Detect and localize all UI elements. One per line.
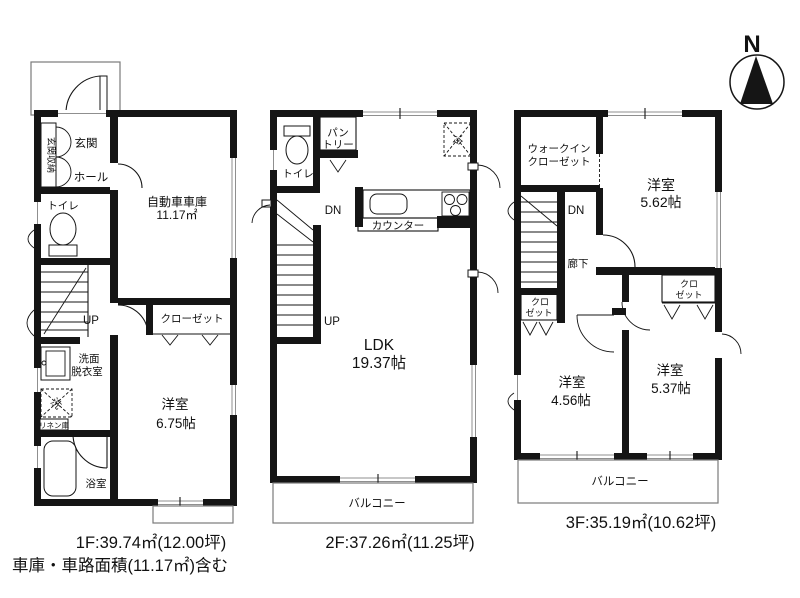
label-washroom-2: 脱衣室 [71, 365, 103, 378]
label-ldk: LDK [364, 337, 395, 354]
label-closet-b-2: ゼット [675, 289, 702, 300]
label-pantry-1: パン [327, 127, 349, 139]
label-closet-a-2: ゼット [525, 307, 552, 318]
floorplan-image: 玄関収納 玄関 ホール トイレ 自動車車庫 11.17㎡ UP クローゼット 洗… [0, 0, 800, 598]
label-toilet-2f: トイレ [282, 168, 314, 180]
label-bedroom2-size: 4.56帖 [551, 393, 591, 408]
label-wic-2: クローゼット [528, 156, 591, 168]
label-dn-2f: DN [325, 205, 342, 217]
label-garage-area: 11.17㎡ [156, 208, 197, 222]
terrace [153, 506, 233, 523]
label-ldk-size: 19.37帖 [352, 354, 406, 372]
floor1-note: 車庫・車路面積(11.17㎡)含む [12, 556, 228, 575]
label-up-2f: UP [324, 316, 340, 328]
label-entrance-storage: 玄関収納 [46, 137, 57, 173]
label-bathroom: 浴室 [86, 477, 107, 490]
label-closet-a-1: クロ [531, 297, 549, 307]
floor2-plan: トイレ パン トリー 冷 DN UP カウンター LDK 19.37帖 バルコニ… [252, 108, 500, 552]
label-garage: 自動車車庫 [147, 195, 207, 209]
label-balcony-2f: バルコニー [348, 497, 405, 510]
label-up: UP [83, 315, 99, 327]
floorplan-page: 玄関収納 玄関 ホール トイレ 自動車車庫 11.17㎡ UP クローゼット 洗… [0, 0, 800, 598]
label-counter: カウンター [372, 220, 425, 232]
label-bedroom3-size: 5.37帖 [651, 381, 691, 396]
toilet-icon-2f [284, 126, 310, 164]
label-bedroom3: 洋室 [657, 362, 684, 378]
label-linen: リネン庫 [39, 420, 69, 430]
label-bedroom: 洋室 [162, 396, 189, 412]
entrance-door-leaf-icon [100, 76, 107, 114]
label-closet: クローゼット [161, 313, 224, 325]
label-closet-b-1: クロ [680, 279, 698, 289]
vanity-icon [41, 347, 70, 380]
sink-icon [370, 194, 407, 214]
floor1-caption: 1F:39.74㎡(12.00坪) [76, 533, 226, 552]
label-bedroom1: 洋室 [647, 177, 675, 193]
floor2-caption: 2F:37.26㎡(11.25坪) [325, 533, 474, 552]
label-bedroom2: 洋室 [559, 374, 586, 390]
bathtub-icon [44, 441, 76, 496]
label-fridge: 冷 [451, 135, 464, 146]
floor1-plan: 玄関収納 玄関 ホール トイレ 自動車車庫 11.17㎡ UP クローゼット 洗… [12, 62, 237, 575]
floor2-walls [270, 110, 477, 483]
label-bedroom-size: 6.75帖 [156, 416, 196, 431]
label-bedroom1-size: 5.62帖 [640, 194, 681, 210]
label-dn-3f: DN [568, 205, 585, 217]
toilet-icon [49, 213, 77, 256]
label-washroom-1: 洗面 [79, 353, 100, 365]
floor3-plan: ウォークイン クローゼット 洋室 5.62帖 DN 廊下 クロ ゼット クロ ゼ… [508, 108, 741, 532]
compass-needle [740, 56, 773, 104]
floor3-caption: 3F:35.19㎡(10.62坪) [566, 513, 716, 532]
label-pantry-2: トリー [322, 139, 354, 151]
label-entrance: 玄関 [75, 136, 98, 150]
label-toilet: トイレ [47, 200, 79, 212]
label-hall: ホール [74, 171, 109, 184]
label-corridor: 廊下 [568, 257, 589, 270]
compass-icon: N [730, 31, 784, 109]
label-wic-1: ウォークイン [528, 143, 591, 155]
compass-north-label: N [743, 31, 760, 58]
label-balcony-3f: バルコニー [591, 475, 648, 488]
